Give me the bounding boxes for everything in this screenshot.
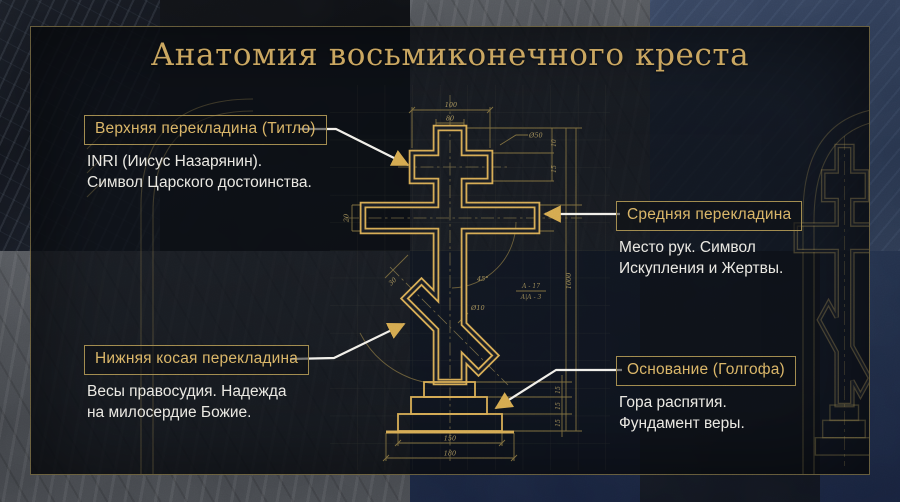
callout-label: Средняя перекладина bbox=[616, 201, 802, 231]
technical-drawing: 100 80 Ø50 10 15 20 30 45° Ø10 А - 17 А|… bbox=[330, 85, 610, 470]
callout-top-crossbar: Верхняя перекладина (Титло) INRI (Иисус … bbox=[84, 115, 327, 193]
dimension-label: Ø50 bbox=[528, 132, 543, 140]
dimension-label: 15 bbox=[555, 386, 562, 394]
dimension-label: 15 bbox=[555, 419, 562, 427]
callout-label: Верхняя перекладина (Титло) bbox=[84, 115, 327, 145]
cross-ornament-right bbox=[796, 136, 869, 466]
callout-label: Основание (Голгофа) bbox=[616, 356, 796, 386]
description-line: Место рук. Символ bbox=[619, 238, 802, 259]
callout-middle-crossbar: Средняя перекладина Место рук. Символ Ис… bbox=[616, 201, 802, 279]
page-title: Анатомия восьмиконечного креста bbox=[30, 37, 870, 73]
callout-base: Основание (Голгофа) Гора распятия. Фунда… bbox=[616, 356, 796, 434]
callout-description: Весы правосудия. Надежда на милосердие Б… bbox=[84, 382, 309, 423]
description-line: Гора распятия. bbox=[619, 393, 796, 414]
reference-label: А - 17 bbox=[521, 283, 540, 290]
dimension-label: 15 bbox=[555, 402, 562, 410]
dimension-label: 10 bbox=[551, 139, 558, 147]
dimension-label: Ø10 bbox=[470, 304, 485, 312]
callout-description: Гора распятия. Фундамент веры. bbox=[616, 393, 796, 434]
dimension-label: 100 bbox=[445, 101, 457, 109]
callout-description: INRI (Иисус Назарянин). Символ Царского … bbox=[84, 152, 327, 193]
dimension-label: 150 bbox=[444, 435, 456, 443]
callout-slanted-crossbar: Нижняя косая перекладина Весы правосудия… bbox=[84, 345, 309, 423]
dimension-label: 1000 bbox=[565, 273, 573, 290]
description-line: Фундамент веры. bbox=[619, 414, 796, 435]
dimension-label: 80 bbox=[446, 115, 454, 123]
dimension-label: 20 bbox=[343, 214, 351, 223]
description-line: Искупления и Жертвы. bbox=[619, 259, 802, 280]
infographic-canvas: Анатомия восьмиконечного креста bbox=[0, 0, 900, 502]
dimension-label: 180 bbox=[444, 450, 456, 458]
reference-label: А|А - 3 bbox=[520, 294, 542, 301]
callout-description: Место рук. Символ Искупления и Жертвы. bbox=[616, 238, 802, 279]
callout-label: Нижняя косая перекладина bbox=[84, 345, 309, 375]
description-line: на милосердие Божие. bbox=[87, 403, 309, 424]
description-line: INRI (Иисус Назарянин). bbox=[87, 152, 327, 173]
dimension-label: 15 bbox=[551, 165, 558, 173]
dimension-label: 45° bbox=[476, 275, 489, 283]
description-line: Весы правосудия. Надежда bbox=[87, 382, 309, 403]
description-line: Символ Царского достоинства. bbox=[87, 173, 327, 194]
